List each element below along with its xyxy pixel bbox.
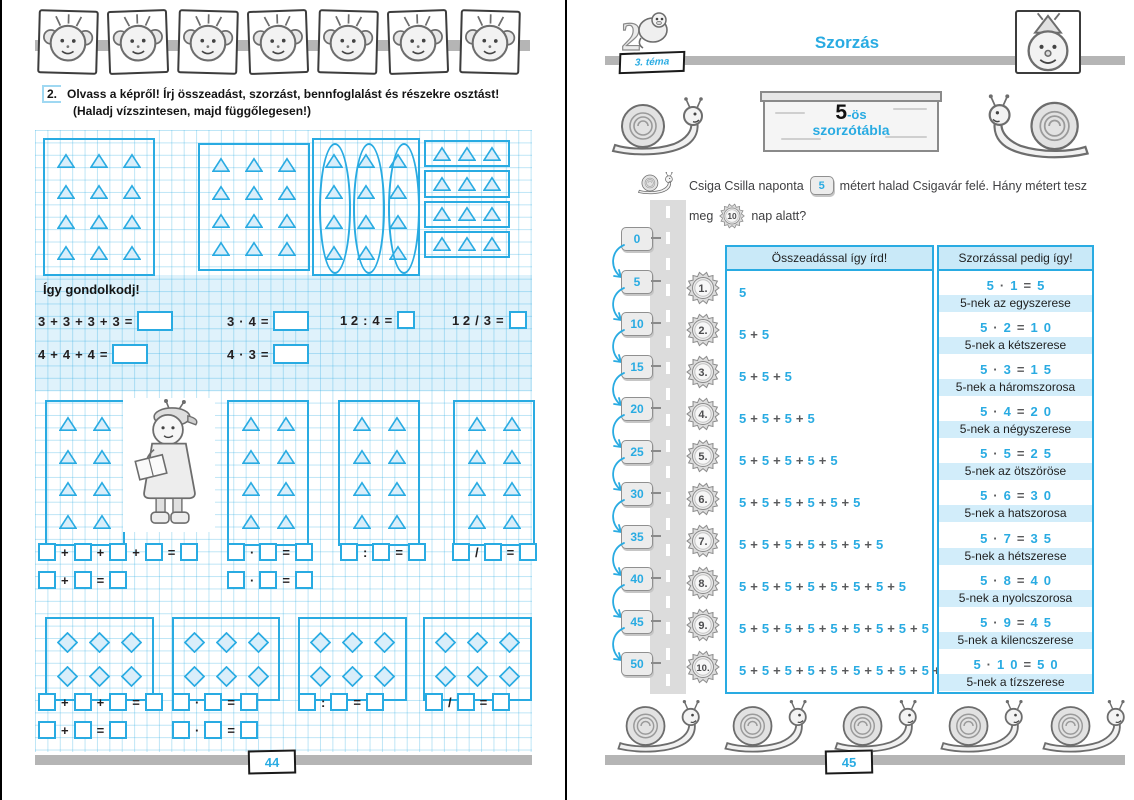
math-token: 3	[1030, 531, 1037, 546]
math-token: 5	[762, 495, 769, 510]
triangle-shape	[433, 236, 451, 252]
math-token: +	[750, 369, 758, 384]
math-token: 5	[899, 621, 906, 636]
answer-box	[366, 693, 384, 711]
math-token: 5	[830, 453, 837, 468]
math-token: +	[842, 663, 850, 678]
triangle-shape	[93, 481, 111, 497]
diamond-grid-box	[45, 617, 154, 701]
right-page: Szorzás 2 3. téma 5-ös szorzótábla	[567, 0, 1134, 800]
triangle-shape	[353, 481, 371, 497]
math-token: 5	[980, 404, 987, 419]
diamond-shape	[499, 632, 520, 653]
triangle-shape	[245, 213, 263, 229]
math-token: 5	[785, 495, 792, 510]
answer-box	[240, 721, 258, 739]
addition-rows: 55+55+5+55+5+5+55+5+5+5+55+5+5+5+5+55+5+…	[727, 271, 932, 692]
triangle-shape	[212, 213, 230, 229]
product-label: 5-nek az egyszerese	[939, 295, 1092, 312]
triangle-shape	[483, 146, 501, 162]
equation-token: +	[61, 723, 69, 738]
exercise-number: 2.	[42, 85, 61, 103]
math-token: ·	[993, 531, 997, 546]
math-token: 5	[807, 579, 814, 594]
math-token: 0	[1044, 320, 1051, 335]
triangle-shape	[59, 514, 77, 530]
equation-token: 1 2	[452, 313, 470, 328]
equation-token: 4	[38, 347, 45, 362]
equation-token: /	[448, 695, 452, 710]
answer-box	[145, 693, 163, 711]
equation: +++=	[38, 543, 198, 561]
problem-text: Csiga Csilla naponta	[689, 179, 804, 193]
triangle-shape	[277, 481, 295, 497]
answer-box	[509, 311, 527, 329]
answer-box	[38, 721, 56, 739]
triangle-shape	[212, 157, 230, 173]
milestone-tick	[651, 280, 661, 282]
svg-text:10.: 10.	[696, 663, 709, 674]
product-equation: 5·7=35	[939, 531, 1092, 546]
triangle-grid-box	[453, 400, 535, 546]
equation-token: =	[227, 723, 235, 738]
math-token: 5	[807, 495, 814, 510]
addition-row-3.: 5+5+5	[727, 355, 932, 397]
problem-text: nap alatt?	[751, 209, 806, 223]
equation-token: =	[261, 347, 269, 362]
math-token: 5	[739, 537, 746, 552]
math-token: ·	[1000, 278, 1004, 293]
math-token: ·	[993, 488, 997, 503]
diamond-shape	[499, 666, 520, 687]
equation: 3+3+3+3=	[38, 311, 173, 331]
math-token: 5	[785, 453, 792, 468]
math-token: +	[842, 579, 850, 594]
triangle-shape	[57, 184, 75, 200]
answer-box	[273, 344, 309, 364]
row-number-badges: 1.2.3.4.5.6.7.8.9.10.	[686, 267, 720, 691]
equation-token: +	[75, 347, 83, 362]
problem-text: meg	[689, 209, 713, 223]
spiky-boy-portrait-icon	[107, 9, 169, 75]
triangle-grid-box-circled	[312, 138, 420, 276]
diamond-shape	[57, 666, 78, 687]
math-token: =	[1017, 446, 1025, 461]
math-token: 0	[1010, 657, 1017, 672]
equation-token: 4	[88, 347, 95, 362]
svg-text:6.: 6.	[698, 493, 707, 505]
addition-table-header: Összeadással így írd!	[727, 247, 932, 271]
svg-text:1.: 1.	[698, 283, 707, 295]
diamond-grid-box	[423, 617, 532, 701]
multiplication-row-4.: 5·4=205-nek a négyszerese	[939, 397, 1092, 439]
addition-row-6.: 5+5+5+5+5+5	[727, 481, 932, 523]
answer-box	[38, 571, 56, 589]
multiplication-table-header: Szorzással pedig így!	[939, 247, 1092, 271]
row-number-sun-badge: 7.	[686, 524, 720, 558]
equation-token: 3	[88, 314, 95, 329]
triangle-shape	[93, 449, 111, 465]
equation: 3·4=	[227, 311, 309, 331]
math-token: 5	[739, 285, 746, 300]
addition-row-2.: 5+5	[727, 313, 932, 355]
product-label: 5-nek a kilencszerese	[939, 632, 1092, 649]
meters-badge: 5	[810, 176, 834, 195]
diamond-shape	[184, 632, 205, 653]
equation-token: =	[496, 313, 504, 328]
math-token: +	[773, 495, 781, 510]
product-equation: 5·3=15	[939, 362, 1092, 377]
math-token: 5	[739, 663, 746, 678]
math-token: +	[773, 663, 781, 678]
triangle-shape	[388, 514, 406, 530]
math-token: +	[796, 579, 804, 594]
math-token: ·	[993, 362, 997, 377]
row-number-sun-badge: 3.	[686, 355, 720, 389]
wood-grain	[885, 136, 927, 138]
equation: /=	[452, 543, 537, 561]
book-spread: 2.Olvass a képről! Írj összeadást, szorz…	[0, 0, 1134, 800]
triangle-shape	[245, 241, 263, 257]
glasses-kid-portrait-icon	[387, 9, 449, 75]
math-token: 5	[830, 537, 837, 552]
math-token: 5	[922, 621, 929, 636]
math-token: 5	[922, 663, 929, 678]
equation-token: :	[321, 695, 325, 710]
answer-box	[295, 543, 313, 561]
math-token: 5	[1044, 615, 1051, 630]
math-token: 0	[1044, 573, 1051, 588]
answer-box	[38, 693, 56, 711]
svg-text:9.: 9.	[698, 620, 707, 632]
snail-icon	[829, 698, 925, 754]
math-token: +	[750, 663, 758, 678]
equation: :=	[298, 693, 384, 711]
math-token: +	[910, 621, 918, 636]
equation: +=	[38, 721, 127, 739]
column-oval	[388, 143, 420, 274]
math-token: +	[750, 537, 758, 552]
math-token: +	[773, 453, 781, 468]
answer-box	[240, 693, 258, 711]
answer-box	[519, 543, 537, 561]
equation: ·=	[227, 543, 313, 561]
snail-icon	[1037, 698, 1133, 754]
equation-token: 4	[227, 347, 234, 362]
triangle-shape	[458, 146, 476, 162]
svg-text:10: 10	[728, 211, 738, 221]
triangle-grid-box	[43, 138, 155, 276]
math-token: 5	[762, 621, 769, 636]
triangle-shape	[458, 206, 476, 222]
equation-token: ·	[250, 573, 254, 588]
answer-box	[408, 543, 426, 561]
math-token: 5	[1037, 278, 1044, 293]
math-token: +	[819, 537, 827, 552]
row-number-sun-badge: 9.	[686, 608, 720, 642]
math-token: 5	[830, 621, 837, 636]
equation-token: =	[132, 695, 140, 710]
triangle-shape	[353, 514, 371, 530]
math-token: =	[1017, 404, 1025, 419]
equation-token: ·	[195, 723, 199, 738]
triangle-shape	[93, 416, 111, 432]
triangle-shape	[123, 184, 141, 200]
equation-token: ·	[239, 314, 243, 329]
triangle-shape	[90, 214, 108, 230]
triangle-shape	[212, 185, 230, 201]
math-token: 5	[807, 453, 814, 468]
math-token: +	[750, 579, 758, 594]
math-token: ·	[993, 446, 997, 461]
triangle-shape	[242, 481, 260, 497]
triangle-row-strip	[424, 201, 510, 228]
multiplication-table: Szorzással pedig így! 5·1=55-nek az egys…	[937, 245, 1094, 694]
math-token: 5	[762, 579, 769, 594]
small-snail-icon	[637, 170, 675, 196]
answer-box	[172, 721, 190, 739]
answer-box	[372, 543, 390, 561]
triangle-grid-box	[45, 400, 125, 546]
math-token: 4	[1030, 615, 1037, 630]
multiplication-row-5.: 5·5=255-nek az ötszöröse	[939, 439, 1092, 481]
column-oval	[319, 143, 351, 274]
math-token: +	[819, 579, 827, 594]
theme-badge: 3. téma	[619, 51, 686, 74]
row-number-sun-badge: 8.	[686, 566, 720, 600]
row-number-sun-badge: 6.	[686, 482, 720, 516]
svg-text:4.: 4.	[698, 409, 707, 421]
math-token: 7	[1004, 531, 1011, 546]
triangle-shape	[468, 514, 486, 530]
triangle-shape	[59, 416, 77, 432]
math-token: +	[842, 495, 850, 510]
product-label: 5-nek az ötszöröse	[939, 463, 1092, 480]
equation-token: 3	[227, 314, 234, 329]
answer-box	[74, 571, 92, 589]
equation-token: +	[97, 695, 105, 710]
math-token: 5	[830, 663, 837, 678]
math-token: 5	[830, 579, 837, 594]
triangle-shape	[433, 176, 451, 192]
math-token: 5	[853, 579, 860, 594]
math-token: +	[750, 411, 758, 426]
triangle-shape	[503, 514, 521, 530]
math-token: +	[796, 495, 804, 510]
math-token: =	[1017, 573, 1025, 588]
addition-table: Összeadással így írd! 55+55+5+55+5+5+55+…	[725, 245, 934, 694]
equation-token: 4	[372, 313, 379, 328]
math-token: +	[796, 453, 804, 468]
equation-token: 3	[112, 314, 119, 329]
math-token: 5	[785, 411, 792, 426]
diamond-shape	[89, 666, 110, 687]
math-token: 5	[1044, 362, 1051, 377]
math-token: +	[842, 537, 850, 552]
triangle-shape	[277, 416, 295, 432]
triangle-shape	[245, 185, 263, 201]
row-number-sun-badge: 10.	[686, 650, 720, 684]
multiplication-table-sign: 5-ös szorzótábla	[763, 96, 939, 152]
math-token: 5	[785, 579, 792, 594]
svg-text:2: 2	[621, 14, 641, 56]
triangle-shape	[468, 416, 486, 432]
equation-token: =	[97, 573, 105, 588]
triangle-shape	[278, 185, 296, 201]
product-equation: 5·10=50	[939, 657, 1092, 672]
math-token: 5	[785, 537, 792, 552]
equation-token: 3	[38, 314, 45, 329]
problem-line-2: meg 10 nap alatt?	[689, 203, 806, 229]
equation-token: =	[353, 695, 361, 710]
triangle-shape	[388, 449, 406, 465]
math-token: 2	[1030, 404, 1037, 419]
triangle-shape	[123, 153, 141, 169]
math-token: +	[796, 621, 804, 636]
triangle-grid-box	[198, 143, 310, 271]
math-token: 2	[1004, 320, 1011, 335]
svg-text:2.: 2.	[698, 325, 707, 337]
monkey-portrait-icon	[177, 9, 239, 75]
product-label: 5-nek a kétszerese	[939, 337, 1092, 354]
math-token: 5	[785, 663, 792, 678]
multiplication-row-2.: 5·2=105-nek a kétszerese	[939, 313, 1092, 355]
problem-text: métert halad Csigavár felé. Hány métert …	[840, 179, 1087, 193]
product-label: 5-nek a nyolcszorosa	[939, 590, 1092, 607]
math-token: +	[910, 663, 918, 678]
answer-box	[340, 543, 358, 561]
math-token: 5	[785, 621, 792, 636]
math-token: +	[773, 621, 781, 636]
milestone-tick	[651, 620, 661, 622]
diamond-shape	[57, 632, 78, 653]
math-token: 5	[980, 488, 987, 503]
math-token: +	[750, 495, 758, 510]
answer-box	[145, 543, 163, 561]
addition-row-7.: 5+5+5+5+5+5+5	[727, 524, 932, 566]
math-token: =	[1017, 488, 1025, 503]
multiplication-row-3.: 5·3=155-nek a háromszorosa	[939, 355, 1092, 397]
product-label: 5-nek a hétszerese	[939, 548, 1092, 565]
math-token: 4	[1004, 404, 1011, 419]
equation-token: =	[100, 347, 108, 362]
diamond-shape	[435, 666, 456, 687]
addition-row-1.: 5	[727, 271, 932, 313]
answer-box	[204, 693, 222, 711]
equation-token: =	[385, 313, 393, 328]
equation-token: ·	[195, 695, 199, 710]
milestone-tick	[651, 577, 661, 579]
diamond-shape	[89, 632, 110, 653]
equation-token: =	[507, 545, 515, 560]
math-token: +	[819, 453, 827, 468]
math-token: 0	[1044, 488, 1051, 503]
answer-box	[425, 693, 443, 711]
answer-box	[227, 571, 245, 589]
page-number: 44	[248, 750, 296, 775]
diamond-shape	[435, 632, 456, 653]
math-token: 5	[762, 537, 769, 552]
think-title: Így gondolkodj!	[43, 282, 140, 297]
math-token: ·	[993, 404, 997, 419]
math-token: 5	[987, 278, 994, 293]
snail-icon	[609, 88, 709, 164]
girl-portrait-icon	[247, 9, 309, 75]
left-page: 2.Olvass a képről! Írj összeadást, szorz…	[0, 0, 567, 800]
multiplication-row-10.: 5·10=505-nek a tízszerese	[939, 650, 1092, 692]
triangle-shape	[483, 236, 501, 252]
math-token: 5	[739, 369, 746, 384]
math-token: +	[819, 621, 827, 636]
diamond-shape	[121, 666, 142, 687]
math-token: +	[796, 663, 804, 678]
math-token: =	[1023, 657, 1031, 672]
milestone-50: 50	[621, 652, 653, 676]
exercise-instruction: 2.Olvass a képről! Írj összeadást, szorz…	[42, 86, 542, 121]
answer-box	[74, 721, 92, 739]
equation-token: ·	[250, 545, 254, 560]
triangle-shape	[57, 245, 75, 261]
equation-token: ·	[239, 347, 243, 362]
triangle-shape	[245, 157, 263, 173]
math-token: ·	[993, 573, 997, 588]
triangle-shape	[483, 206, 501, 222]
answer-box	[452, 543, 470, 561]
math-token: 5	[980, 531, 987, 546]
equation-token: =	[227, 695, 235, 710]
diamond-shape	[184, 666, 205, 687]
milestone-tick	[651, 237, 661, 239]
math-token: 5	[762, 453, 769, 468]
triangle-shape	[212, 241, 230, 257]
triangle-shape	[57, 214, 75, 230]
math-token: 5	[853, 537, 860, 552]
math-token: +	[750, 327, 758, 342]
math-token: 5	[739, 327, 746, 342]
triangle-shape	[503, 416, 521, 432]
triangle-shape	[242, 514, 260, 530]
triangle-shape	[59, 481, 77, 497]
answer-box	[74, 693, 92, 711]
milestone-tick	[651, 365, 661, 367]
math-token: 5	[807, 663, 814, 678]
math-token: 5	[980, 446, 987, 461]
column-oval	[353, 143, 385, 274]
row-number-sun-badge: 5.	[686, 439, 720, 473]
answer-box	[227, 543, 245, 561]
math-token: 5	[876, 537, 883, 552]
triangle-shape	[433, 146, 451, 162]
product-equation: 5·8=40	[939, 573, 1092, 588]
math-token: 6	[1004, 488, 1011, 503]
math-token: 5	[899, 663, 906, 678]
math-token: +	[796, 537, 804, 552]
answer-box	[298, 693, 316, 711]
elephant-portrait-icon	[37, 9, 99, 75]
svg-text:3.: 3.	[698, 367, 707, 379]
snail-icon	[719, 698, 815, 754]
wood-grain	[781, 138, 821, 140]
answer-box	[259, 543, 277, 561]
answer-box	[109, 693, 127, 711]
triangle-shape	[123, 245, 141, 261]
math-token: =	[1017, 615, 1025, 630]
math-token: ·	[993, 615, 997, 630]
triangle-shape	[278, 157, 296, 173]
math-token: 9	[1004, 615, 1011, 630]
triangle-shape	[277, 514, 295, 530]
diamond-shape	[342, 632, 363, 653]
